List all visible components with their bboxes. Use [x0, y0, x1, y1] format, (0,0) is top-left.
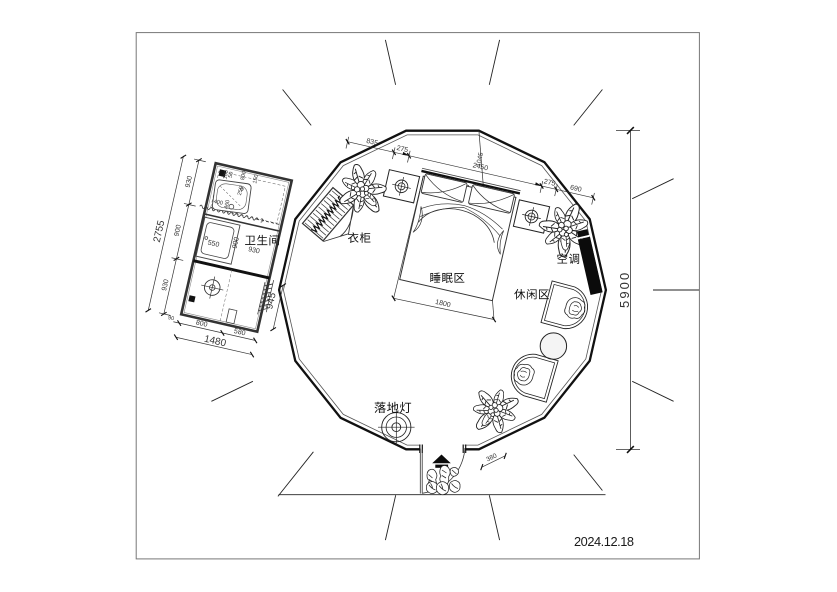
svg-text:2024.12.18: 2024.12.18 — [574, 534, 634, 549]
svg-text:5900: 5900 — [617, 271, 632, 308]
